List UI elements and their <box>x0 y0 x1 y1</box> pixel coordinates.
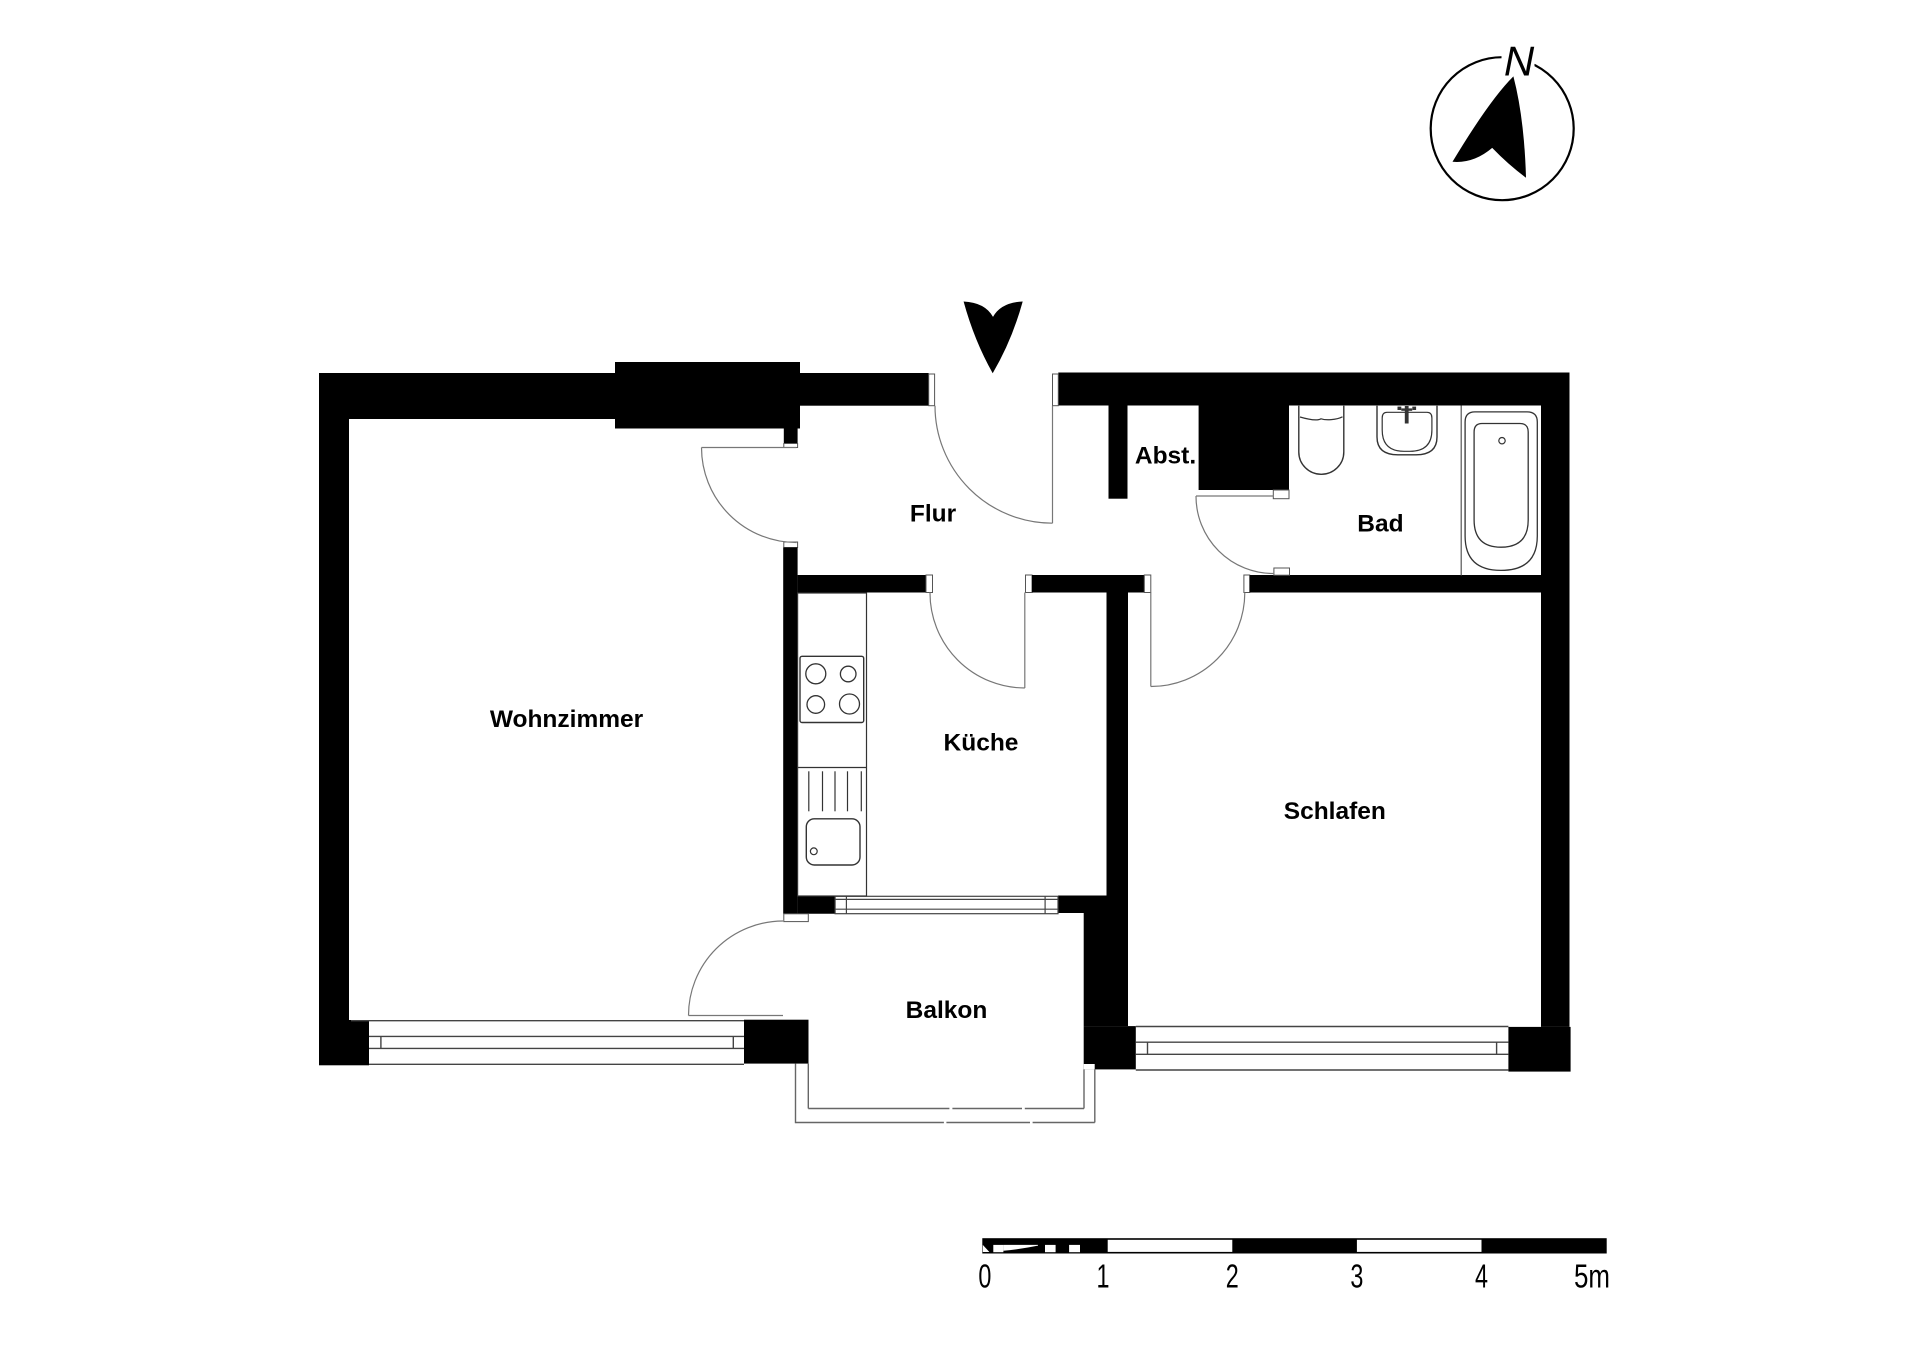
svg-text:Balkon: Balkon <box>906 997 988 1024</box>
svg-text:Küche: Küche <box>944 730 1019 757</box>
svg-text:2: 2 <box>1226 1258 1239 1295</box>
svg-text:Schlafen: Schlafen <box>1284 798 1386 825</box>
svg-text:Wohnzimmer: Wohnzimmer <box>490 706 644 733</box>
svg-text:N: N <box>1504 38 1535 85</box>
svg-text:Flur: Flur <box>910 500 957 527</box>
svg-text:5m: 5m <box>1574 1258 1610 1295</box>
svg-text:Bad: Bad <box>1357 511 1403 538</box>
svg-text:0: 0 <box>978 1258 991 1295</box>
svg-text:1: 1 <box>1097 1258 1110 1295</box>
svg-text:3: 3 <box>1350 1258 1363 1295</box>
svg-text:4: 4 <box>1475 1258 1488 1295</box>
svg-text:Abst.: Abst. <box>1135 442 1196 469</box>
